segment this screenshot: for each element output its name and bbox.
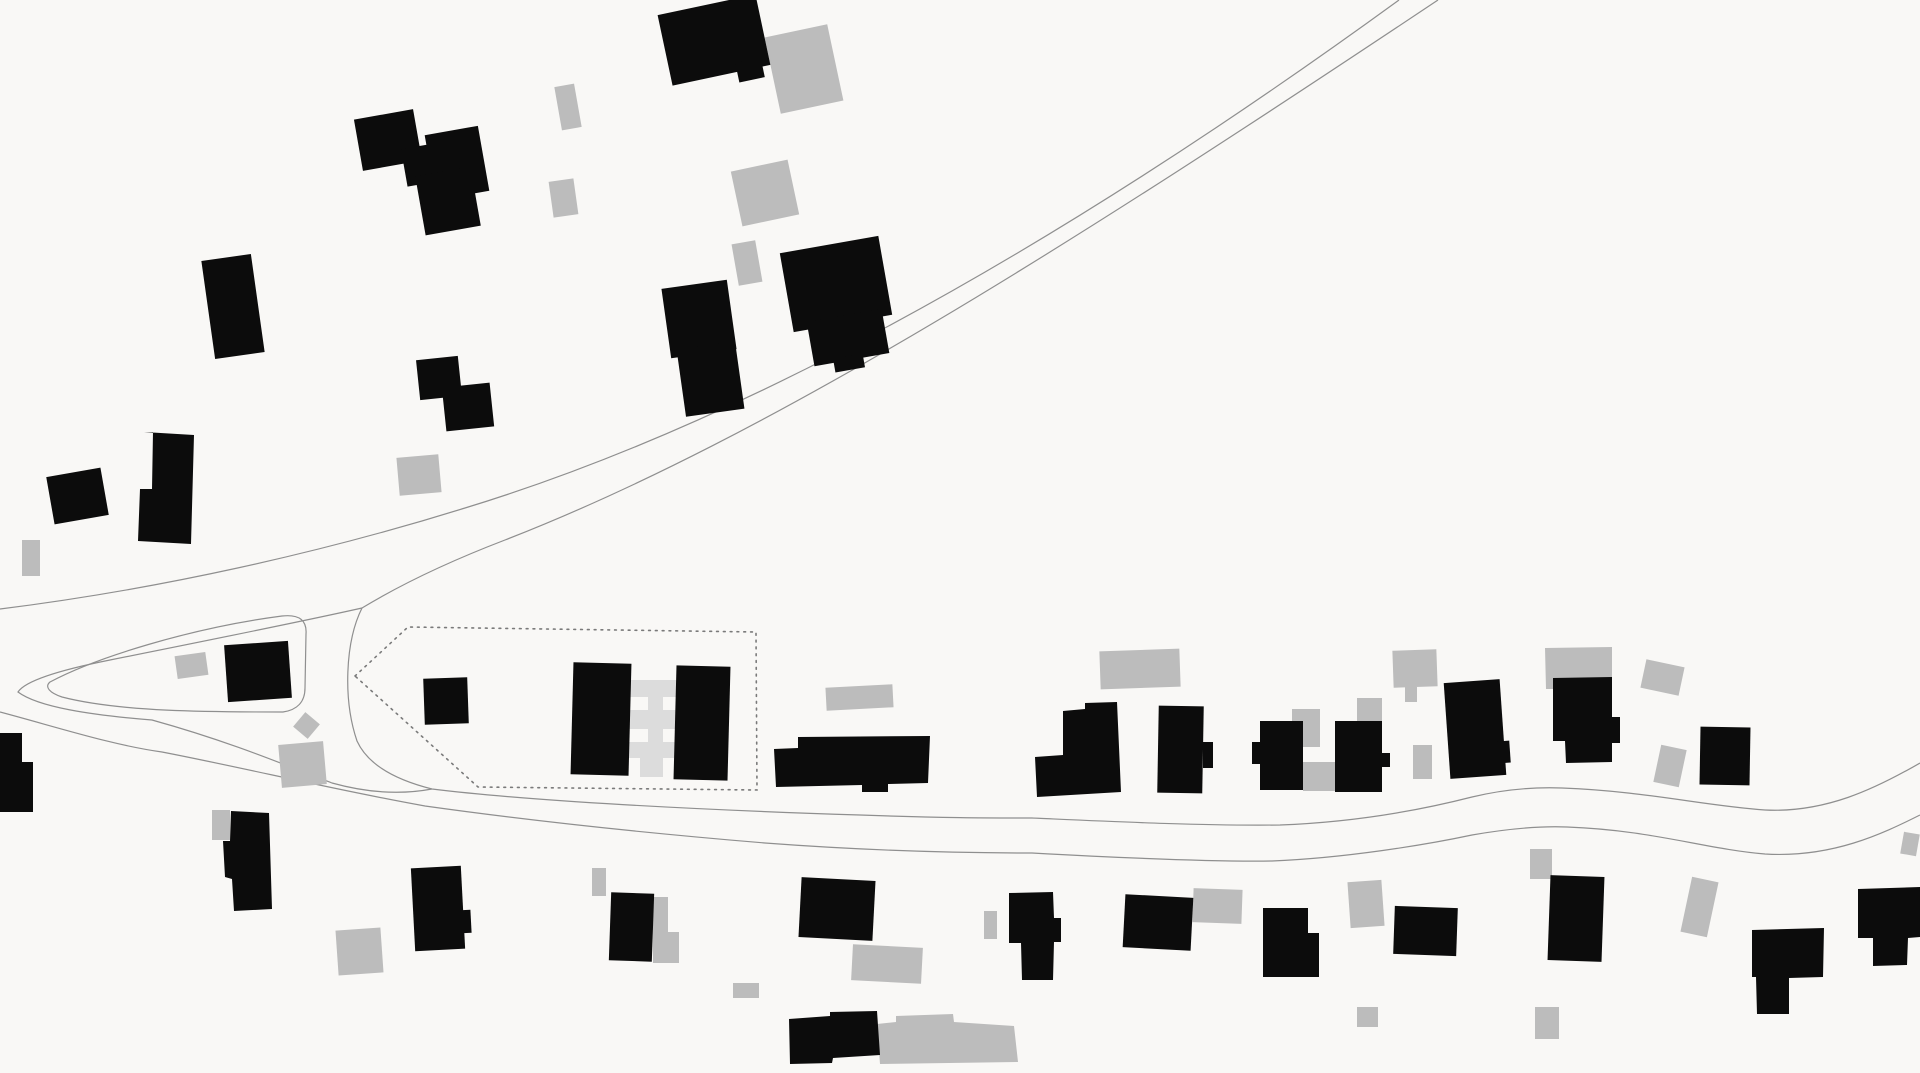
building-footprint xyxy=(1203,742,1213,768)
building-footprint xyxy=(609,892,654,961)
building-footprint xyxy=(1260,721,1303,790)
accessory-building xyxy=(1303,762,1335,791)
building-footprint xyxy=(1497,741,1511,764)
building-footprint xyxy=(1252,742,1260,764)
building-footprint xyxy=(1699,727,1750,786)
accessory-building xyxy=(1530,849,1552,879)
link-corridor-bar xyxy=(640,758,663,777)
accessory-building xyxy=(1099,649,1180,690)
building-footprint xyxy=(1382,753,1390,767)
building-footprint xyxy=(423,677,469,725)
accessory-building xyxy=(984,911,997,939)
figure-ground-map xyxy=(0,0,1920,1073)
accessory-building xyxy=(592,868,606,896)
accessory-building xyxy=(212,810,230,840)
site-plan-canvas xyxy=(0,0,1920,1073)
building-footprint xyxy=(1548,875,1605,962)
accessory-building xyxy=(1413,745,1432,779)
building-footprint xyxy=(674,665,731,780)
building-footprint xyxy=(46,468,108,525)
accessory-building xyxy=(1405,687,1417,702)
accessory-building xyxy=(1535,1007,1559,1039)
accessory-building xyxy=(549,178,579,217)
accessory-building xyxy=(731,160,799,227)
accessory-building xyxy=(335,927,383,975)
accessory-building xyxy=(1357,1007,1378,1027)
accessory-building xyxy=(22,540,40,576)
building-footprint xyxy=(1335,721,1382,792)
accessory-building xyxy=(733,983,759,998)
building-footprint xyxy=(460,910,471,933)
accessory-building xyxy=(278,741,327,788)
accessory-building xyxy=(175,652,209,679)
building-footprint xyxy=(1444,679,1507,779)
building-footprint xyxy=(1157,706,1204,794)
building-footprint xyxy=(1393,906,1458,956)
accessory-building xyxy=(1347,880,1384,928)
accessory-building xyxy=(1192,888,1242,924)
accessory-building xyxy=(1357,698,1382,721)
building-footprint xyxy=(798,877,875,941)
building-footprint xyxy=(1123,894,1194,950)
map-background xyxy=(0,0,1920,1073)
accessory-building xyxy=(1392,649,1437,688)
building-footprint xyxy=(442,383,494,432)
accessory-building xyxy=(851,944,923,984)
accessory-building xyxy=(396,454,441,496)
building-footprint xyxy=(415,167,481,236)
building-footprint xyxy=(677,341,745,417)
accessory-building xyxy=(825,684,893,710)
building-footprint xyxy=(571,662,632,775)
building-footprint xyxy=(224,641,292,702)
building-footprint xyxy=(411,866,465,952)
